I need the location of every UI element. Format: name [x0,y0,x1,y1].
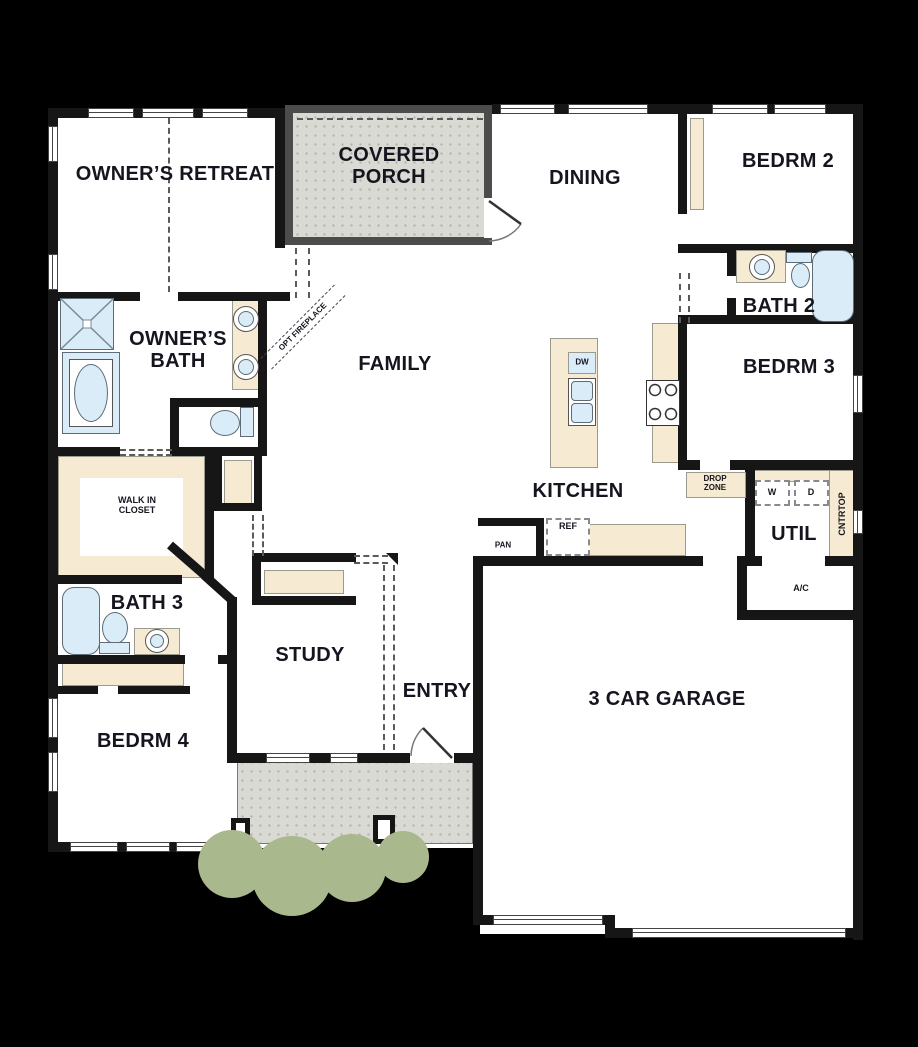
ceiling-break-line [168,118,170,292]
front-porch-area [237,757,473,844]
wall-segment [58,447,120,456]
room-label-kitchen: KITCHEN [533,480,624,502]
kitchen-sink-basin [571,403,593,423]
cased-opening [354,562,388,564]
wall-segment [473,556,703,566]
sink-bowl [150,634,164,648]
room-label-bedrm4: BEDRM 4 [97,730,189,752]
bathtub-owners [74,364,108,422]
room-label-covered-porch: COVERED PORCH [338,144,439,188]
cased-opening [393,565,395,750]
refrigerator-label: REF [559,522,577,532]
bathtub-bath2 [812,250,854,322]
linen-shelf [224,460,252,504]
kitchen-sink-basin [571,381,593,401]
window [48,254,58,290]
sink-bowl [754,259,770,275]
bedrm4-closet-shelf [62,662,184,686]
shower [60,298,114,350]
wall-segment [678,460,700,470]
porch-edge-dashed [297,118,483,120]
room-label-bath3: BATH 3 [111,592,184,614]
porch-post [231,818,250,844]
wall-segment [118,686,190,694]
window [853,375,863,413]
bathtub-bath3 [62,587,100,655]
toilet-tank [240,407,254,437]
cooktop [646,380,680,426]
wall-segment [275,108,285,248]
room-label-dining: DINING [549,167,621,189]
wall-segment [678,114,687,214]
cased-opening [383,565,385,750]
wall-segment [58,655,185,664]
window [88,108,134,118]
drop-zone-label: DROP ZONE [703,475,726,493]
room-label-walk-in-closet: WALK IN CLOSET [118,496,156,516]
cased-opening [295,248,297,298]
wall-segment [214,447,222,509]
window [176,842,214,852]
wall-segment [473,556,483,925]
wall-segment [252,596,356,605]
wall-segment [825,556,862,566]
window [774,104,826,114]
wall-segment [730,460,862,470]
pantry-label: PAN [495,542,511,551]
wall-segment [252,553,356,562]
room-label-owners-retreat: OWNER’S RETREAT [76,163,275,185]
window [70,842,118,852]
cased-opening [354,555,388,557]
cased-opening [688,273,690,323]
window [712,104,768,114]
wall-segment [218,655,237,664]
wall-segment [178,292,290,301]
window [266,753,310,763]
toilet-tank [786,252,812,263]
front-door-opening [410,753,454,763]
wall-segment [737,610,862,620]
label-line: BATH [129,350,227,372]
porch-door-opening [484,198,493,238]
wall-segment [48,108,58,852]
window [126,842,170,852]
washer-label: W [768,488,777,498]
cased-opening [120,449,172,451]
toilet-bowl [210,410,240,436]
sink-bowl [238,311,254,327]
garage-door-single [493,915,603,925]
label-line: PORCH [338,166,439,188]
window [48,752,58,792]
cased-opening [262,515,264,556]
cased-opening [252,515,254,556]
wall-segment [227,597,237,763]
wall-segment [205,456,214,580]
wall-segment [727,244,736,276]
room-label-bedrm3: BEDRM 3 [743,356,835,378]
wall-segment [536,518,544,558]
cased-opening [308,248,310,298]
window [568,104,648,114]
wall-segment [745,470,755,560]
room-label-bath2: BATH 2 [743,295,816,317]
room-label-owners-bath: OWNER’S BATH [129,328,227,372]
room-label-entry: ENTRY [403,680,472,702]
wall-segment [478,518,544,526]
garage-door-double [632,928,846,938]
window [853,510,863,534]
dryer-label: D [808,488,815,498]
sink-bowl [238,359,254,375]
room-label-bedrm2: BEDRM 2 [742,150,834,172]
wall-segment [58,686,98,694]
countertop-label: CNTRTOP [837,492,847,535]
room-label-garage: 3 CAR GARAGE [589,688,746,710]
window [142,108,194,118]
room-label-util: UTIL [771,523,817,545]
cased-opening [120,454,172,456]
label-line: ZONE [703,484,726,493]
cased-opening [679,273,681,323]
wall-segment [58,575,182,584]
window [330,753,358,763]
floor-plan: OWNER’S RETREAT COVERED PORCH DINING BED… [0,0,918,1047]
study-closet-shelf [264,570,344,594]
wall-segment [170,398,267,407]
bedrm2-closet-shelf [690,118,704,210]
room-label-family: FAMILY [358,353,431,375]
porch-post [373,815,395,844]
room-label-study: STUDY [275,644,344,666]
room-label-ac: A/C [793,584,809,594]
label-line: CLOSET [118,506,156,516]
toilet-bowl [791,263,810,288]
walkin-closet-floor [80,478,183,556]
toilet-tank [99,642,130,654]
window [48,126,58,162]
wall-segment [258,292,267,456]
wall-segment [254,447,262,509]
kitchen-counter-bottom [588,524,686,556]
window [500,104,555,114]
label-line: COVERED [338,144,439,166]
label-line: OWNER’S [129,328,227,350]
window [48,698,58,738]
window [202,108,248,118]
dishwasher-label: DW [575,359,588,368]
toilet-bowl [102,612,128,644]
